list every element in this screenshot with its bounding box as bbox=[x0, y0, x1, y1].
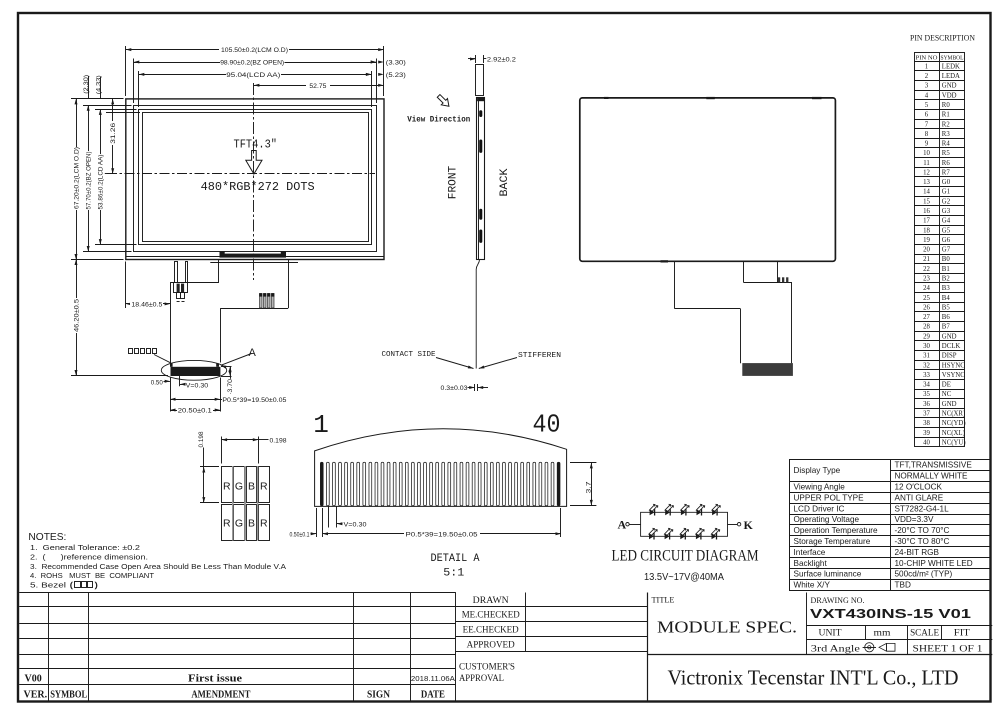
svg-text:B: B bbox=[248, 481, 255, 493]
svg-text:0.3±0.03: 0.3±0.03 bbox=[441, 385, 468, 392]
svg-text:35: 35 bbox=[923, 391, 930, 398]
svg-text:3: 3 bbox=[925, 83, 929, 90]
svg-text:G4: G4 bbox=[942, 218, 951, 225]
svg-text:P0.5*39=19.50±0.05: P0.5*39=19.50±0.05 bbox=[406, 531, 478, 538]
svg-text:500cd/m² (TYP): 500cd/m² (TYP) bbox=[895, 570, 953, 579]
svg-text:GND: GND bbox=[942, 333, 957, 340]
svg-text:31: 31 bbox=[923, 353, 930, 360]
svg-text:LCD Driver IC: LCD Driver IC bbox=[794, 504, 845, 513]
svg-text:16: 16 bbox=[923, 208, 930, 215]
svg-text:TFT,TRANSMISSIVE: TFT,TRANSMISSIVE bbox=[895, 461, 973, 470]
svg-text:25: 25 bbox=[923, 295, 930, 302]
svg-text:R: R bbox=[260, 481, 268, 493]
svg-text:LEDA: LEDA bbox=[942, 73, 960, 80]
svg-text:21: 21 bbox=[923, 256, 930, 263]
svg-text:29: 29 bbox=[923, 333, 930, 340]
svg-text:7: 7 bbox=[925, 121, 929, 128]
svg-text:PIN NO: PIN NO bbox=[916, 55, 939, 62]
svg-text:32: 32 bbox=[923, 362, 930, 369]
svg-text:G: G bbox=[235, 481, 243, 493]
svg-text:2018.11.06A: 2018.11.06A bbox=[411, 676, 455, 683]
svg-text:NC(YU): NC(YU) bbox=[942, 439, 966, 446]
svg-text:White X/Y: White X/Y bbox=[794, 581, 831, 590]
svg-text:31.26: 31.26 bbox=[110, 123, 117, 144]
svg-text:(5.23): (5.23) bbox=[386, 72, 406, 79]
svg-text:13.5V~17V@40MA: 13.5V~17V@40MA bbox=[644, 572, 724, 583]
svg-text:R0: R0 bbox=[942, 102, 951, 109]
svg-text:VDD: VDD bbox=[942, 92, 957, 99]
svg-text:Operating Voltage: Operating Voltage bbox=[794, 515, 860, 524]
svg-text:R: R bbox=[223, 481, 231, 493]
svg-text:0.198: 0.198 bbox=[270, 437, 287, 444]
svg-text:Storage Temperature: Storage Temperature bbox=[794, 537, 871, 546]
svg-text:NC(YD): NC(YD) bbox=[942, 420, 966, 427]
svg-text:-20°C TO 70°C: -20°C TO 70°C bbox=[895, 526, 950, 535]
svg-text:(3.30): (3.30) bbox=[386, 60, 406, 67]
svg-text:0.198: 0.198 bbox=[198, 431, 205, 447]
svg-text:ST7282-G4-1L: ST7282-G4-1L bbox=[895, 504, 950, 513]
svg-text:MODULE SPEC.: MODULE SPEC. bbox=[657, 618, 797, 637]
svg-text:24: 24 bbox=[923, 285, 930, 292]
svg-text:K: K bbox=[744, 518, 754, 532]
svg-text:TBD: TBD bbox=[895, 581, 911, 590]
svg-text:R7: R7 bbox=[942, 169, 951, 176]
svg-text:3.70: 3.70 bbox=[227, 379, 234, 393]
svg-text:33: 33 bbox=[923, 372, 930, 379]
svg-text:NORMALLY WHITE: NORMALLY WHITE bbox=[895, 472, 968, 481]
svg-text:BACK: BACK bbox=[499, 168, 511, 196]
svg-text:2: 2 bbox=[925, 73, 929, 80]
svg-text:B3: B3 bbox=[942, 285, 951, 292]
svg-text:18.46±0.5: 18.46±0.5 bbox=[131, 302, 162, 309]
svg-text:13: 13 bbox=[923, 179, 930, 186]
svg-text:DETAIL A: DETAIL A bbox=[431, 553, 480, 565]
svg-text:12: 12 bbox=[923, 169, 930, 176]
svg-text:Interface: Interface bbox=[794, 548, 826, 557]
svg-text:R1: R1 bbox=[942, 112, 950, 119]
svg-text:R3: R3 bbox=[942, 131, 951, 138]
svg-text:B4: B4 bbox=[942, 295, 951, 302]
svg-text:R5: R5 bbox=[942, 150, 951, 157]
svg-text:ME.CHECKED: ME.CHECKED bbox=[462, 609, 520, 619]
svg-text:V=0.30: V=0.30 bbox=[186, 382, 209, 389]
svg-text:5. Bezel: 5. Bezel bbox=[30, 581, 66, 590]
svg-text:CONTACT SIDE: CONTACT SIDE bbox=[382, 351, 436, 359]
svg-text:10-CHIP WHITE LED: 10-CHIP WHITE LED bbox=[895, 559, 973, 568]
svg-text:V=0.30: V=0.30 bbox=[344, 522, 367, 529]
svg-text:UNIT: UNIT bbox=[819, 628, 843, 638]
svg-text:R: R bbox=[260, 518, 268, 530]
svg-text:LEDK: LEDK bbox=[942, 63, 960, 70]
svg-text:15: 15 bbox=[923, 198, 930, 205]
svg-text:R2: R2 bbox=[942, 121, 951, 128]
svg-text:10: 10 bbox=[923, 150, 930, 157]
svg-text:mm: mm bbox=[874, 629, 892, 639]
svg-text:B5: B5 bbox=[942, 304, 951, 311]
svg-text:40: 40 bbox=[923, 439, 930, 446]
svg-text:A: A bbox=[249, 347, 257, 359]
svg-text:SIGN: SIGN bbox=[367, 689, 391, 700]
svg-text:SYMBOL: SYMBOL bbox=[50, 689, 87, 700]
svg-text:G7: G7 bbox=[942, 247, 951, 254]
svg-text:Backlight: Backlight bbox=[794, 559, 828, 568]
svg-text:R: R bbox=[223, 518, 231, 530]
svg-text:24-BIT RGB: 24-BIT RGB bbox=[895, 548, 940, 557]
svg-text:R6: R6 bbox=[942, 160, 951, 167]
svg-text:B: B bbox=[248, 518, 255, 530]
svg-text:20: 20 bbox=[923, 247, 930, 254]
svg-text:HSYNC: HSYNC bbox=[942, 362, 966, 369]
svg-text:SCALE: SCALE bbox=[910, 628, 939, 638]
svg-text:57.70±0.2(BZ OPEN): 57.70±0.2(BZ OPEN) bbox=[86, 152, 93, 210]
svg-text:3.7: 3.7 bbox=[585, 481, 592, 493]
svg-text:VXT430INS-15 V01: VXT430INS-15 V01 bbox=[810, 606, 971, 621]
svg-text:R4: R4 bbox=[942, 141, 951, 148]
svg-text:9: 9 bbox=[925, 141, 929, 148]
svg-text:GND: GND bbox=[942, 401, 957, 408]
svg-text:Victronix Tecenstar INT'L Co.,: Victronix Tecenstar INT'L Co., LTD bbox=[668, 666, 959, 690]
svg-text:VDD=3.3V: VDD=3.3V bbox=[895, 515, 934, 524]
svg-text:A: A bbox=[618, 518, 627, 532]
svg-text:G: G bbox=[235, 518, 243, 530]
svg-text:NC(XR): NC(XR) bbox=[942, 411, 965, 418]
svg-text:B0: B0 bbox=[942, 256, 951, 263]
svg-text:1: 1 bbox=[313, 410, 329, 440]
svg-text:0.50±0.1: 0.50±0.1 bbox=[290, 531, 310, 538]
svg-text:APPROVED: APPROVED bbox=[467, 640, 515, 650]
svg-text:4. ROHS MUST BE COMPLIANT: 4. ROHS MUST BE COMPLIANT bbox=[30, 571, 154, 580]
svg-text:NC(XL): NC(XL) bbox=[942, 430, 965, 437]
svg-text:19: 19 bbox=[923, 237, 930, 244]
svg-text:98.90±0.2(BZ OPEN): 98.90±0.2(BZ OPEN) bbox=[220, 60, 284, 67]
svg-text:G5: G5 bbox=[942, 227, 951, 234]
svg-text:V00: V00 bbox=[25, 674, 42, 685]
svg-text:20.50±0.1: 20.50±0.1 bbox=[178, 408, 212, 415]
svg-text:-30°C TO 80°C: -30°C TO 80°C bbox=[895, 537, 950, 546]
svg-text:GND: GND bbox=[942, 83, 957, 90]
svg-text:5:1: 5:1 bbox=[443, 568, 464, 580]
svg-text:480*RGB*272 DOTS: 480*RGB*272 DOTS bbox=[201, 181, 315, 194]
svg-text:SYMBOL: SYMBOL bbox=[941, 55, 964, 62]
svg-text:36: 36 bbox=[923, 401, 930, 408]
svg-text:(2.30): (2.30) bbox=[83, 75, 90, 94]
svg-text:30: 30 bbox=[923, 343, 930, 350]
svg-text:DE: DE bbox=[942, 382, 951, 389]
svg-text:38: 38 bbox=[923, 420, 930, 427]
svg-text:B6: B6 bbox=[942, 314, 951, 321]
svg-text:VER.: VER. bbox=[24, 689, 48, 700]
svg-text:G0: G0 bbox=[942, 179, 951, 186]
svg-text:LED CIRCUIT DIAGRAM: LED CIRCUIT DIAGRAM bbox=[612, 548, 759, 565]
svg-text:VSYNC: VSYNC bbox=[942, 372, 966, 379]
svg-text:14: 14 bbox=[923, 189, 930, 196]
svg-text:3rd Angle: 3rd Angle bbox=[811, 644, 860, 654]
svg-text:NC: NC bbox=[942, 391, 952, 398]
svg-text:G2: G2 bbox=[942, 198, 951, 205]
svg-text:53.86±0.2(LCD AA): 53.86±0.2(LCD AA) bbox=[98, 155, 105, 210]
svg-text:Operation Temperature: Operation Temperature bbox=[794, 526, 878, 535]
svg-text:APPROVAL: APPROVAL bbox=[459, 673, 504, 683]
svg-text:11: 11 bbox=[923, 160, 930, 167]
svg-text:18: 18 bbox=[923, 227, 930, 234]
svg-text:1: 1 bbox=[925, 63, 928, 70]
svg-text:23: 23 bbox=[923, 276, 930, 283]
svg-text:FRONT: FRONT bbox=[448, 165, 460, 199]
svg-text:3. Recommended Case Open Area: 3. Recommended Case Open Area Should Be … bbox=[30, 562, 287, 571]
svg-text:40: 40 bbox=[533, 410, 561, 440]
svg-text:5: 5 bbox=[925, 102, 929, 109]
svg-text:Display Type: Display Type bbox=[794, 466, 841, 475]
svg-text:FIT: FIT bbox=[954, 628, 971, 638]
svg-text:46.20±0.5: 46.20±0.5 bbox=[73, 299, 80, 332]
svg-text:First issue: First issue bbox=[188, 674, 243, 685]
svg-text:2. ( )reference dimensio: 2. ( )reference dimension. bbox=[30, 552, 148, 561]
svg-text:G3: G3 bbox=[942, 208, 951, 215]
svg-text:37: 37 bbox=[923, 411, 930, 418]
svg-text:27: 27 bbox=[923, 314, 930, 321]
svg-text:22: 22 bbox=[923, 266, 930, 273]
svg-text:View Direction: View Direction bbox=[407, 115, 470, 124]
svg-text:52.75: 52.75 bbox=[309, 83, 326, 90]
svg-text:2.92±0.2: 2.92±0.2 bbox=[487, 57, 516, 64]
svg-text:EE.CHECKED: EE.CHECKED bbox=[463, 625, 519, 635]
svg-text:Surface luminance: Surface luminance bbox=[794, 570, 862, 579]
svg-text:NOTES:: NOTES: bbox=[28, 531, 66, 543]
svg-text:DATE: DATE bbox=[421, 689, 445, 700]
svg-text:STIFFEREN: STIFFEREN bbox=[518, 352, 561, 360]
svg-text:(4.33): (4.33) bbox=[95, 75, 102, 94]
svg-text:28: 28 bbox=[923, 324, 930, 331]
svg-text:AMENDMENT: AMENDMENT bbox=[191, 689, 250, 700]
svg-text:TFT4.3": TFT4.3" bbox=[234, 139, 278, 152]
svg-text:P0.5*39=19.50±0.05: P0.5*39=19.50±0.05 bbox=[222, 397, 286, 404]
svg-text:4: 4 bbox=[925, 92, 929, 99]
svg-text:12 O′CLOCK: 12 O′CLOCK bbox=[895, 483, 943, 492]
svg-text:67.20±0.2(LCM O.D): 67.20±0.2(LCM O.D) bbox=[73, 147, 80, 209]
svg-text:SHEET 1 OF 1: SHEET 1 OF 1 bbox=[913, 644, 983, 654]
svg-text:17: 17 bbox=[923, 218, 930, 225]
svg-text:DRAWN: DRAWN bbox=[473, 595, 510, 605]
svg-text:1. General Tolerance: ±0.2: 1. General Tolerance: ±0.2 bbox=[30, 543, 140, 552]
svg-text:DISP: DISP bbox=[942, 353, 957, 360]
svg-text:DRAWING NO.: DRAWING NO. bbox=[811, 596, 865, 605]
svg-text:34: 34 bbox=[923, 382, 930, 389]
svg-text:105.50±0.2(LCM O.D): 105.50±0.2(LCM O.D) bbox=[221, 47, 288, 54]
svg-text:B1: B1 bbox=[942, 266, 950, 273]
svg-text:B2: B2 bbox=[942, 276, 951, 283]
svg-text:B7: B7 bbox=[942, 324, 951, 331]
svg-text:G6: G6 bbox=[942, 237, 951, 244]
svg-text:Viewing Angle: Viewing Angle bbox=[794, 483, 846, 492]
svg-text:26: 26 bbox=[923, 304, 930, 311]
svg-text:0.50: 0.50 bbox=[151, 379, 163, 386]
svg-text:G1: G1 bbox=[942, 189, 950, 196]
svg-text:ANTI GLARE: ANTI GLARE bbox=[895, 493, 944, 502]
svg-text:6: 6 bbox=[925, 112, 929, 119]
svg-text:8: 8 bbox=[925, 131, 929, 138]
svg-text:PIN DESCRIPTION: PIN DESCRIPTION bbox=[910, 33, 975, 42]
svg-text:39: 39 bbox=[923, 430, 930, 437]
svg-text:TITLE: TITLE bbox=[652, 595, 675, 604]
svg-text:95.04(LCD AA): 95.04(LCD AA) bbox=[226, 72, 280, 79]
svg-text:UPPER POL TYPE: UPPER POL TYPE bbox=[794, 493, 865, 502]
svg-text:CUSTOMER'S: CUSTOMER'S bbox=[459, 662, 515, 672]
svg-text:DCLK: DCLK bbox=[942, 343, 961, 350]
